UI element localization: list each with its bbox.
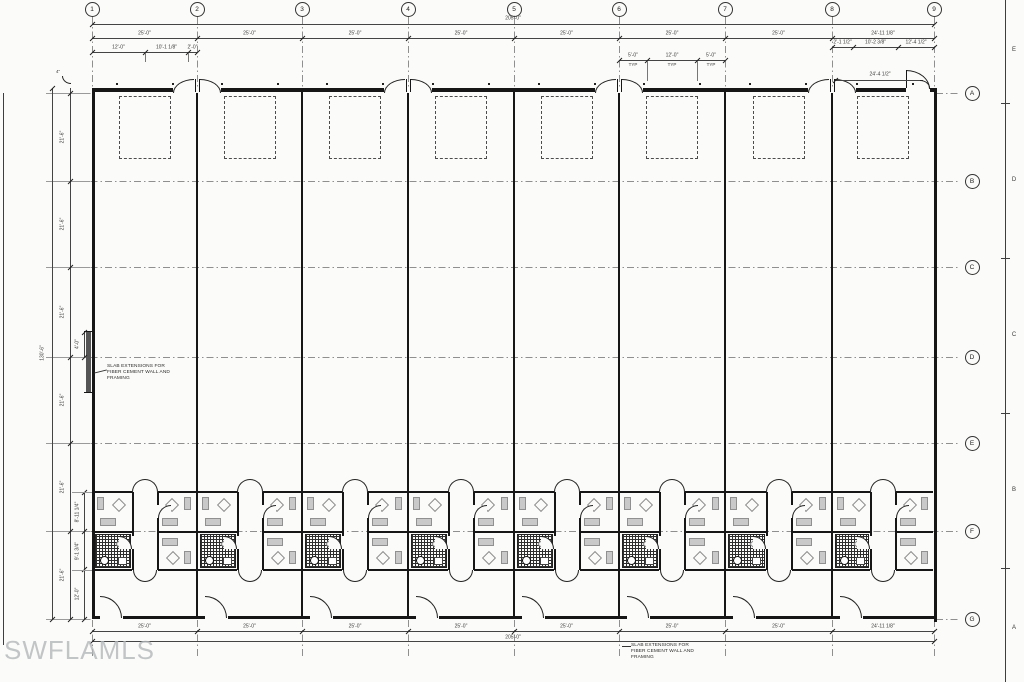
bearing-dot: [432, 83, 434, 85]
office-door-arc: [580, 505, 593, 518]
office-desk: [202, 497, 209, 510]
zone-letter: B: [1012, 487, 1016, 493]
office-chair: [693, 551, 707, 565]
office-desk: [519, 497, 526, 510]
corridor-wall-left-b: [870, 549, 872, 570]
grid-bubble-col-7: 7: [718, 2, 733, 17]
office-chair: [745, 498, 759, 512]
office-door-arc: [474, 505, 487, 518]
dim-label-corner-offset: 4": [56, 70, 60, 75]
front-door-arc-right: [622, 79, 643, 93]
office-chair: [166, 551, 180, 565]
dim-line-slab-offset: [84, 332, 85, 357]
front-door-leaf: [195, 79, 197, 92]
corridor-wall-left-a: [766, 492, 768, 536]
office-table: [478, 518, 494, 526]
bearing-dot: [221, 83, 223, 85]
office-chair: [112, 498, 126, 512]
bearing-dot: [856, 83, 858, 85]
block-mid-wall-left: [833, 531, 870, 533]
rear-exterior-door-arc: [840, 596, 862, 618]
block-mid-wall-right: [580, 531, 618, 533]
grid-line-col-5: [514, 17, 515, 88]
grid-bubble-row-B: B: [965, 174, 980, 189]
corridor-wall-right-b: [579, 518, 581, 570]
block-bottom-wall-right: [792, 569, 831, 571]
corridor-entry-door-arc: [237, 479, 263, 492]
restroom-fixture: [434, 557, 443, 565]
bearing-dot: [643, 83, 645, 85]
office-desk: [395, 497, 402, 510]
bearing-dot: [749, 83, 751, 85]
block-bottom-wall-right: [474, 569, 513, 571]
block-mid-wall-left: [303, 531, 342, 533]
dim-label-overall-left: 130'-6": [41, 345, 46, 361]
office-chair: [217, 498, 231, 512]
toilet: [100, 556, 109, 565]
office-desk: [501, 497, 508, 510]
rear-exterior-door-arc: [100, 596, 122, 618]
toilet: [840, 556, 849, 565]
office-desk: [712, 551, 719, 564]
note-leader: [94, 369, 107, 373]
toilet: [522, 556, 531, 565]
office-table: [372, 518, 388, 526]
office-table: [267, 518, 283, 526]
dim-label-row-segment: 21'-6": [61, 131, 66, 144]
dim-label-office-depth: 8'-11 1/4": [75, 501, 80, 522]
bearing-dot: [277, 83, 279, 85]
grid-line-col-8-below: [832, 620, 833, 657]
dim-label-bay6-sub: 12'-0": [666, 53, 679, 58]
block-top-wall-left: [833, 491, 870, 493]
block-mid-wall-right: [896, 531, 933, 533]
bearing-dot: [805, 83, 807, 85]
office-chair: [800, 551, 814, 565]
zone-divider: [1001, 258, 1010, 259]
front-door-leaf: [830, 79, 832, 92]
corridor-entry-door-arc: [554, 479, 580, 492]
dim-line-office-depth: [84, 492, 85, 619]
office-chair: [271, 551, 285, 565]
front-door-arc-left: [808, 79, 829, 93]
dim-label-row-segment: 21'-6": [61, 306, 66, 319]
toilet: [733, 556, 742, 565]
dim-label-bay1-sub: 12'-0": [112, 45, 125, 50]
corridor-wall-right-b: [791, 518, 793, 570]
office-table: [900, 538, 916, 546]
rear-exterior-door-arc: [205, 596, 227, 618]
floor-plan-sheet: 205'-0"25'-0"25'-0"25'-0"25'-0"25'-0"25'…: [0, 0, 1024, 682]
office-door-arc: [368, 505, 381, 518]
office-desk: [501, 551, 508, 564]
front-door-arc-left: [595, 79, 616, 93]
office-door-arc: [685, 505, 698, 518]
mezzanine-outline: [646, 96, 698, 159]
office-desk: [624, 497, 631, 510]
dim-label-bay8-sub: 12'-4 1/2": [905, 40, 926, 45]
office-table: [372, 538, 388, 546]
block-mid-wall-left: [409, 531, 448, 533]
office-desk: [413, 497, 420, 510]
corridor-rear-door-arc: [133, 570, 157, 582]
mezzanine-outline: [857, 96, 909, 159]
rear-exterior-door-arc: [416, 596, 438, 618]
dim-line-overall-bottom: [92, 641, 934, 642]
grid-line-col-8: [832, 17, 833, 88]
office-desk: [837, 497, 844, 510]
office-chair: [852, 498, 866, 512]
grid-line-col-9: [934, 17, 935, 88]
grid-bubble-col-4: 4: [401, 2, 416, 17]
block-top-wall-left: [409, 491, 448, 493]
demising-wall-8: [831, 88, 833, 619]
corridor-wall-left-a: [342, 492, 344, 536]
dim-label-bay-bottom: 25'-0": [772, 625, 785, 630]
grid-line-row-G-leader: [936, 619, 958, 620]
corridor-rear-door-arc: [555, 570, 579, 582]
dim-label-bay-top: 25'-0": [560, 31, 573, 36]
front-door-leaf: [410, 79, 412, 92]
block-bottom-wall-right: [685, 569, 724, 571]
dim-label-typ: TYP: [629, 63, 638, 68]
office-table: [733, 518, 749, 526]
corridor-wall-right-a: [791, 492, 793, 505]
dim-label-overall-bottom: 205'-0": [505, 635, 521, 640]
grid-bubble-row-A: A: [965, 86, 980, 101]
dim-line-rows-left: [70, 88, 71, 619]
mezzanine-outline: [435, 96, 487, 159]
front-door-arc-left: [173, 79, 194, 93]
block-top-wall-left: [93, 491, 132, 493]
block-bottom-wall-right: [368, 569, 407, 571]
block-bottom-wall-left: [620, 569, 659, 571]
grid-bubble-col-6: 6: [612, 2, 627, 17]
dim-line-overall-top: [92, 24, 934, 25]
dim-label-row-segment: 21'-6": [61, 394, 66, 407]
slab-extension-cap: [84, 392, 92, 393]
dim-ext: [188, 53, 189, 62]
sheet-border-left: [3, 93, 4, 645]
front-door-leaf: [199, 79, 201, 92]
office-desk: [921, 551, 928, 564]
office-chair: [534, 498, 548, 512]
rear-exterior-door-arc: [310, 596, 332, 618]
corridor-wall-right-b: [367, 518, 369, 570]
office-desk: [289, 551, 296, 564]
office-chair: [588, 551, 602, 565]
grid-bubble-col-3: 3: [295, 2, 310, 17]
office-table: [796, 518, 812, 526]
block-bottom-wall-left: [409, 569, 448, 571]
block-bottom-wall-left: [303, 569, 342, 571]
block-top-wall-right: [896, 491, 933, 493]
dim-ext: [647, 61, 648, 81]
corridor-wall-left-b: [342, 549, 344, 570]
dim-label-bay-top: 25'-0": [666, 31, 679, 36]
corridor-wall-left-b: [659, 549, 661, 570]
corridor-rear-door-arc: [449, 570, 473, 582]
corridor-wall-right-a: [684, 492, 686, 505]
front-door-leaf: [617, 79, 619, 92]
grid-line-row-B: [76, 181, 958, 182]
corridor-entry-door-arc: [870, 479, 896, 492]
grid-bubble-row-C: C: [965, 260, 980, 275]
office-door-arc: [792, 505, 805, 518]
office-table: [478, 538, 494, 546]
grid-line-col-7: [725, 17, 726, 88]
dim-label-bay-bottom: 25'-0": [455, 625, 468, 630]
dim-label-bay-top: 25'-0": [243, 31, 256, 36]
office-chair: [322, 498, 336, 512]
dim-label-bay-top: 25'-0": [455, 31, 468, 36]
office-door-arc: [263, 505, 276, 518]
dim-label-bay1-sub: 10'-1 1/8": [156, 45, 177, 50]
dim-label-bay-top: 24'-11 1/8": [871, 31, 895, 36]
block-top-wall-left: [620, 491, 659, 493]
corridor-wall-right-a: [367, 492, 369, 505]
grid-bubble-row-G: G: [965, 612, 980, 627]
grid-line-row-E: [76, 443, 958, 444]
office-table: [689, 538, 705, 546]
dim-label-bay-bottom: 25'-0": [138, 625, 151, 630]
dim-label-row-segment: 21'-6": [61, 569, 66, 582]
block-bottom-wall-left: [515, 569, 554, 571]
demising-wall-5: [513, 88, 515, 619]
right-wall: [934, 88, 937, 622]
block-top-wall-right: [580, 491, 618, 493]
grid-line-row-A-leader: [936, 93, 958, 94]
slab-note-left: SLAB EXTENSIONS FOR FIBER CEMENT WALL AN…: [107, 364, 177, 382]
grid-bubble-row-E: E: [965, 436, 980, 451]
office-table: [900, 518, 916, 526]
office-table: [584, 538, 600, 546]
bearing-dot: [488, 83, 490, 85]
office-table: [522, 518, 538, 526]
block-bottom-wall-left: [93, 569, 132, 571]
restroom-fixture: [856, 557, 865, 565]
office-desk: [395, 551, 402, 564]
corridor-wall-left-a: [659, 492, 661, 536]
office-table: [840, 518, 856, 526]
corridor-wall-left-b: [554, 549, 556, 570]
office-chair: [904, 551, 918, 565]
block-top-wall-right: [792, 491, 831, 493]
dim-label-bay-bottom: 24'-11 1/8": [871, 625, 895, 630]
toilet: [205, 556, 214, 565]
corridor-wall-right-a: [157, 492, 159, 505]
office-desk: [819, 497, 826, 510]
dim-label-bay-bottom: 25'-0": [349, 625, 362, 630]
block-mid-wall-right: [368, 531, 407, 533]
office-desk: [97, 497, 104, 510]
zone-divider: [1001, 103, 1010, 104]
block-mid-wall-left: [198, 531, 237, 533]
bearing-dot: [382, 83, 384, 85]
toilet: [627, 556, 636, 565]
block-bottom-wall-left: [198, 569, 237, 571]
grid-line-col-3: [302, 17, 303, 88]
office-table: [162, 538, 178, 546]
block-mid-wall-left: [515, 531, 554, 533]
office-desk: [606, 551, 613, 564]
office-table: [627, 518, 643, 526]
restroom-fixture: [118, 557, 127, 565]
demising-wall-3: [301, 88, 303, 619]
office-table: [310, 518, 326, 526]
plan-layer: 205'-0"25'-0"25'-0"25'-0"25'-0"25'-0"25'…: [0, 0, 1024, 682]
front-door-leaf: [621, 79, 623, 92]
office-chair: [376, 551, 390, 565]
dim-label-bay8-sub: 10'-2 3/8": [865, 40, 886, 45]
dim-line-bay8-sub: [832, 47, 934, 48]
office-chair: [428, 498, 442, 512]
dim-label-office-depth: 9'-1 3/4": [75, 541, 80, 559]
office-table: [205, 518, 221, 526]
dim-label-office-depth: 12'-0": [75, 588, 80, 601]
grid-line-col-6-below: [619, 620, 620, 657]
mezzanine-outline: [224, 96, 276, 159]
office-desk: [730, 497, 737, 510]
grid-bubble-col-2: 2: [190, 2, 205, 17]
block-mid-wall-left: [93, 531, 132, 533]
dim-label-bay6-sub: 5'-0": [706, 53, 716, 58]
restroom-fixture: [645, 557, 654, 565]
office-chair: [482, 551, 496, 565]
grid-bubble-col-5: 5: [507, 2, 522, 17]
front-door-leaf: [406, 79, 408, 92]
dim-label-slab-offset: 4'-0": [75, 339, 80, 349]
demising-wall-2: [196, 88, 198, 619]
bearing-dot: [326, 83, 328, 85]
block-mid-wall-right: [792, 531, 831, 533]
block-top-wall-left: [303, 491, 342, 493]
dim-label-row-segment: 21'-6": [61, 481, 66, 494]
block-top-wall-right: [474, 491, 513, 493]
dim-label-bay1-sub: 2'-0": [188, 45, 198, 50]
bearing-dot: [594, 83, 596, 85]
rear-exterior-door-arc: [627, 596, 649, 618]
demising-wall-7: [724, 88, 726, 619]
office-table: [416, 518, 432, 526]
dim-label-bay-bottom: 25'-0": [666, 625, 679, 630]
block-mid-wall-right: [685, 531, 724, 533]
block-mid-wall-left: [726, 531, 766, 533]
corner-door-leaf: [906, 70, 907, 88]
office-desk: [819, 551, 826, 564]
office-table: [584, 518, 600, 526]
block-bottom-wall-right: [158, 569, 196, 571]
corridor-wall-left-a: [448, 492, 450, 536]
office-door-arc: [896, 505, 909, 518]
dim-line-corner: [835, 80, 923, 81]
corridor-wall-left-b: [766, 549, 768, 570]
corridor-rear-door-arc: [660, 570, 684, 582]
block-top-wall-left: [726, 491, 766, 493]
office-desk: [606, 497, 613, 510]
front-door-arc-right: [835, 79, 856, 93]
grid-bubble-row-D: D: [965, 350, 980, 365]
restroom-fixture: [752, 557, 761, 565]
zone-letter: E: [1012, 47, 1016, 53]
corridor-wall-left-b: [132, 549, 134, 570]
restroom-fixture: [328, 557, 337, 565]
zone-divider: [1001, 413, 1010, 414]
zone-letter: D: [1012, 177, 1016, 183]
grid-line-col-3-below: [302, 620, 303, 657]
dim-label-typ: TYP: [668, 63, 677, 68]
office-desk: [712, 497, 719, 510]
grid-line-row-C: [76, 267, 958, 268]
block-bottom-wall-right: [896, 569, 933, 571]
bearing-dot: [538, 83, 540, 85]
corridor-wall-right-b: [262, 518, 264, 570]
mezzanine-outline: [753, 96, 805, 159]
corridor-wall-left-a: [132, 492, 134, 536]
dim-ext: [72, 492, 92, 493]
corridor-entry-door-arc: [448, 479, 474, 492]
grid-bubble-col-9: 9: [927, 2, 942, 17]
corridor-rear-door-arc: [238, 570, 262, 582]
front-door-arc-right: [200, 79, 221, 93]
front-door-arc-right: [411, 79, 432, 93]
office-desk: [184, 497, 191, 510]
toilet: [416, 556, 425, 565]
dim-ext: [697, 61, 698, 81]
grid-bubble-col-8: 8: [825, 2, 840, 17]
corridor-wall-right-a: [579, 492, 581, 505]
block-bottom-wall-right: [580, 569, 618, 571]
dim-label-row-segment: 21'-6": [61, 218, 66, 231]
office-desk: [184, 551, 191, 564]
dim-label-overall-top: 205'-0": [505, 17, 521, 22]
grid-line-col-6: [619, 17, 620, 88]
dim-label-corner: 24'-4 1/2": [869, 73, 890, 78]
corridor-wall-left-a: [870, 492, 872, 536]
block-top-wall-left: [515, 491, 554, 493]
rear-exterior-door-arc: [733, 596, 755, 618]
mezzanine-outline: [329, 96, 381, 159]
corridor-entry-door-arc: [342, 479, 368, 492]
demising-wall-4: [407, 88, 409, 619]
block-bottom-wall-left: [726, 569, 766, 571]
grid-bubble-col-1: 1: [85, 2, 100, 17]
dim-ext: [72, 570, 92, 571]
office-desk: [307, 497, 314, 510]
dim-corner-hook: [920, 80, 930, 88]
block-top-wall-left: [198, 491, 237, 493]
grid-bubble-row-F: F: [965, 524, 980, 539]
corridor-wall-right-b: [895, 518, 897, 570]
front-door-arc-left: [384, 79, 405, 93]
office-door-arc: [158, 505, 171, 518]
dim-label-bay-top: 25'-0": [138, 31, 151, 36]
slab-note-bottom: SLAB EXTENSIONS FOR FIBER CEMENT WALL AN…: [631, 643, 701, 661]
watermark: SWFLAMLS: [4, 635, 155, 666]
dim-label-bay6-sub: 5'-0": [628, 53, 638, 58]
demising-wall-6: [618, 88, 620, 619]
block-mid-wall-right: [474, 531, 513, 533]
restroom-fixture: [540, 557, 549, 565]
corridor-wall-left-a: [237, 492, 239, 536]
corridor-wall-right-a: [473, 492, 475, 505]
block-top-wall-right: [368, 491, 407, 493]
dim-label-bay-top: 25'-0": [349, 31, 362, 36]
corridor-rear-door-arc: [767, 570, 791, 582]
grid-line-col-7-below: [725, 620, 726, 657]
corridor-wall-right-a: [262, 492, 264, 505]
corridor-wall-right-b: [684, 518, 686, 570]
